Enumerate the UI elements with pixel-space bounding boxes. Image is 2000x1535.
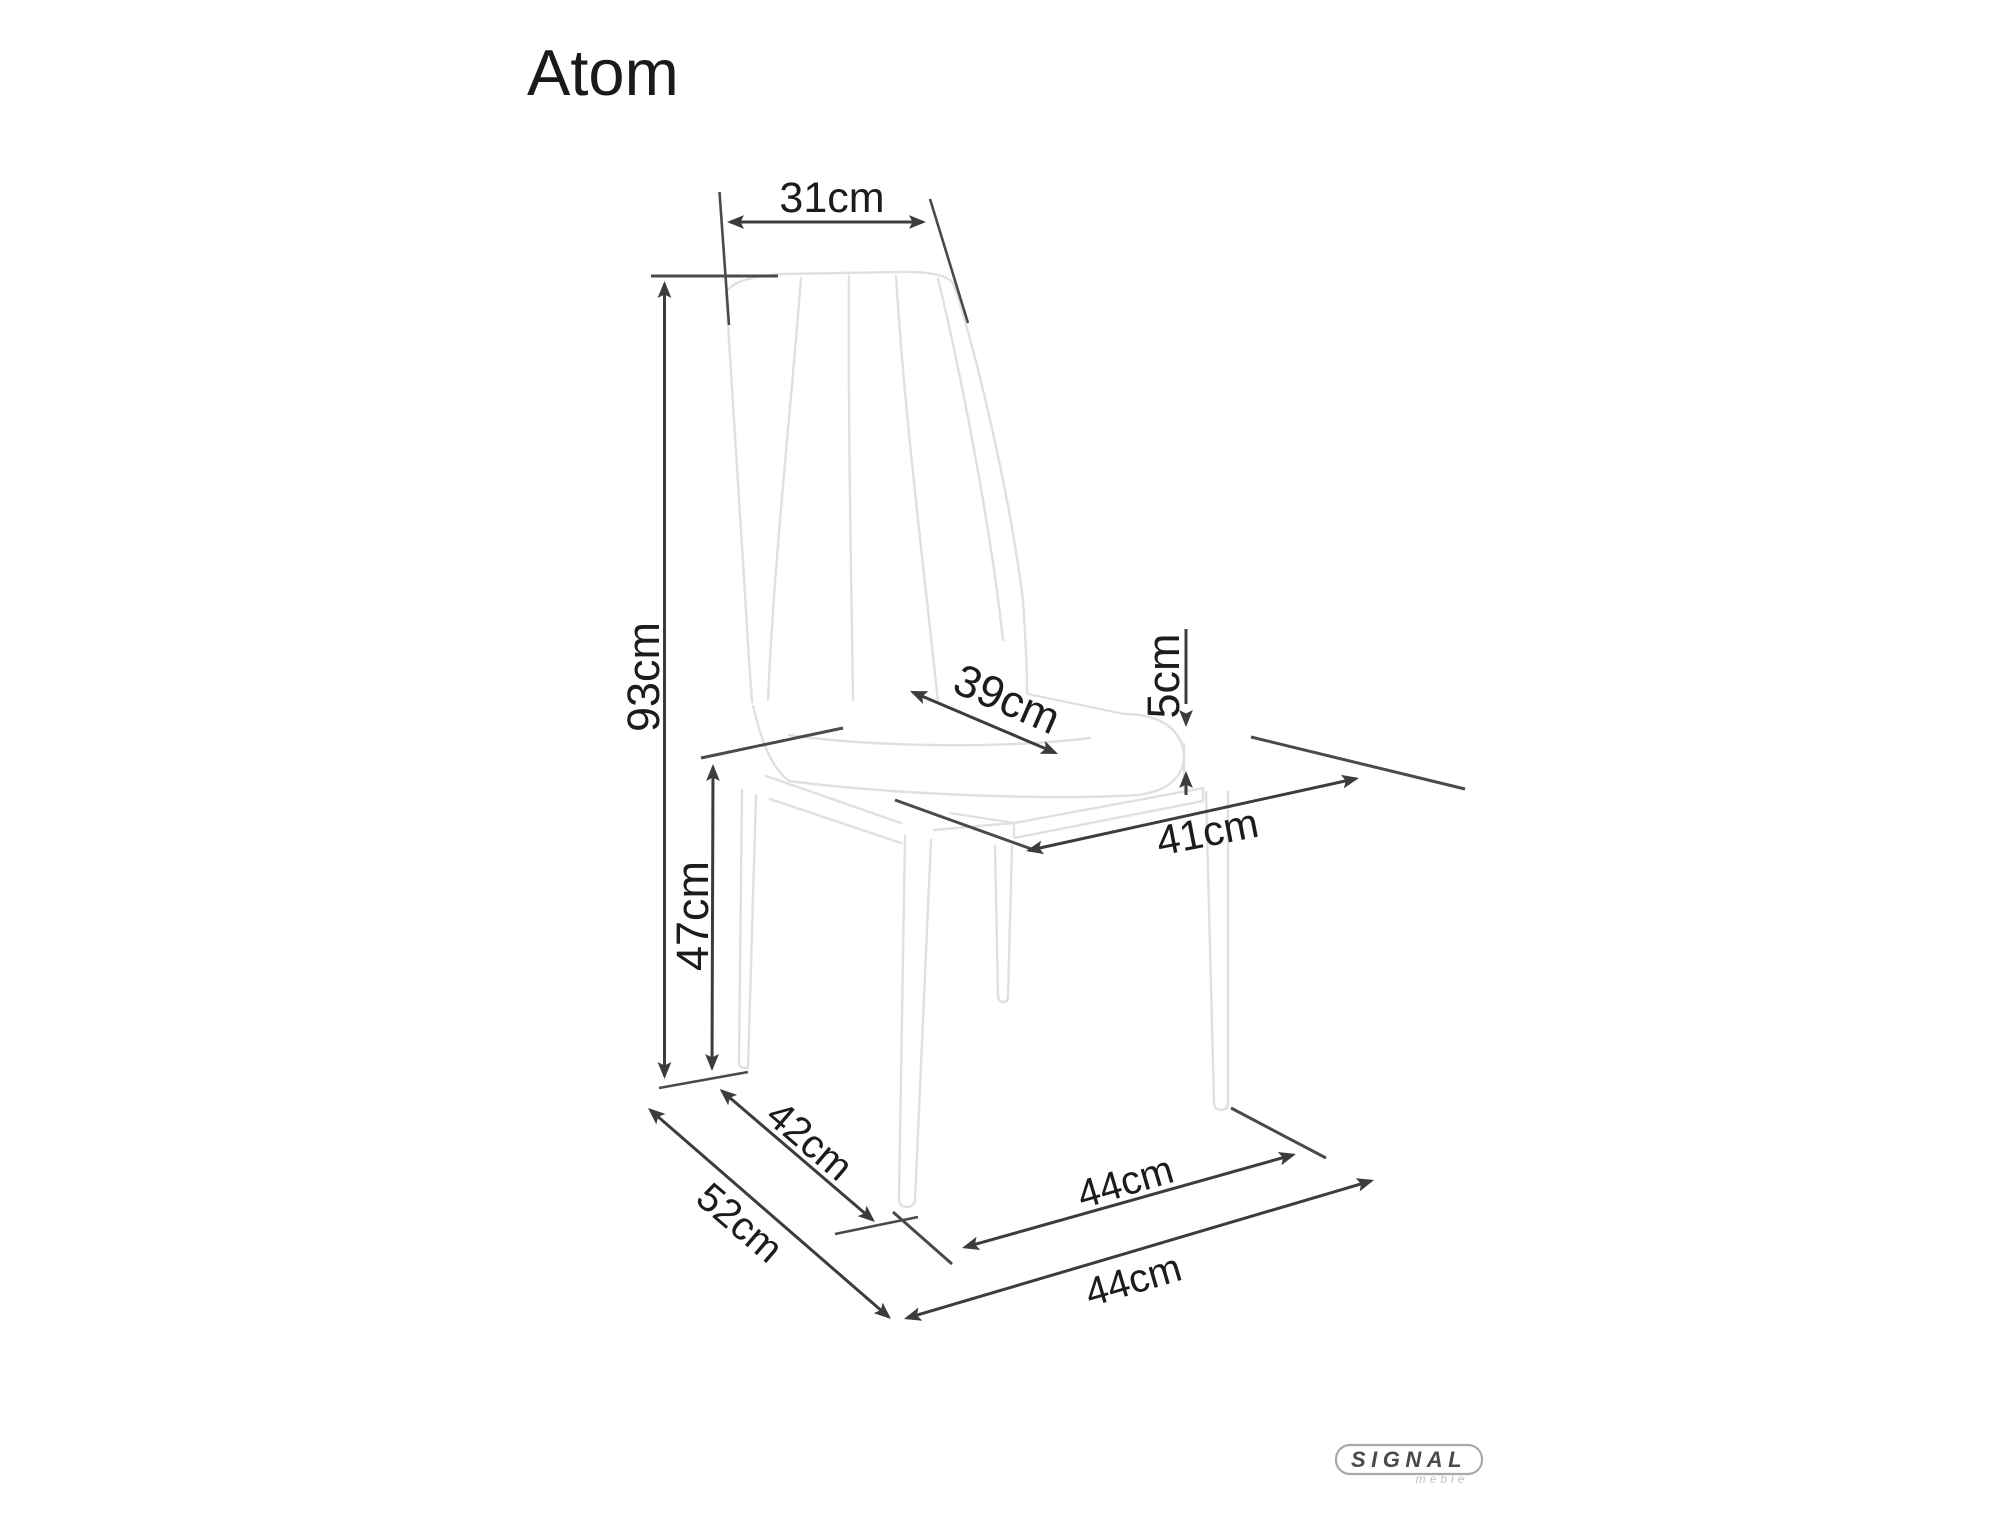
svg-text:Atom: Atom xyxy=(527,36,679,109)
svg-text:93cm: 93cm xyxy=(618,622,669,732)
svg-text:31cm: 31cm xyxy=(779,174,884,222)
svg-text:meble: meble xyxy=(1416,1472,1469,1486)
svg-text:SIGNAL: SIGNAL xyxy=(1351,1447,1467,1472)
svg-text:5cm: 5cm xyxy=(1138,633,1189,718)
svg-text:47cm: 47cm xyxy=(667,861,718,971)
